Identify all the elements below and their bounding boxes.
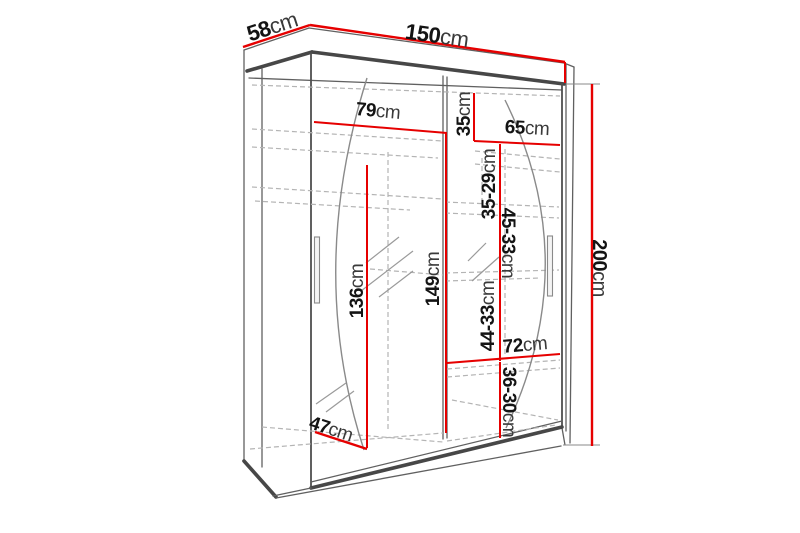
dim-label-upper-left-width-value: 79 — [355, 99, 377, 122]
dim-label-left-height-value: 136 — [347, 288, 368, 318]
dim-label-bottom-gap-unit: cm — [499, 413, 520, 437]
dim-label-right-gap-middle-value: 45-33 — [498, 208, 519, 254]
left-door-handle — [315, 237, 320, 303]
dim-label-left-height-unit: cm — [347, 264, 368, 288]
mirror-hatch-right — [468, 243, 499, 281]
plinth-floor-edge — [276, 446, 561, 498]
dim-label-upper-right-width-value: 65 — [504, 116, 526, 138]
cornice-left — [247, 52, 312, 71]
dim-label-bottom-depth-unit: cm — [326, 418, 356, 445]
dim-label-right-gap-top-unit: cm — [479, 149, 500, 173]
dim-label-upper-shelf-height-value: 35 — [454, 115, 475, 136]
dim-label-upper-left-width-unit: cm — [375, 100, 401, 123]
dim-label-width: 150cm — [404, 18, 470, 52]
dim-line-upper-right-width — [474, 141, 560, 145]
left-side-bottom — [244, 461, 276, 497]
dim-label-right-gap-middle: 45-33cm — [498, 208, 519, 278]
dim-label-left-height: 136cm — [347, 264, 368, 319]
under-cornice-edge — [249, 78, 562, 90]
dim-label-upper-right-width: 65cm — [504, 116, 550, 139]
dim-label-bottom-gap: 36-30cm — [499, 367, 520, 437]
dim-label-height: 200cm — [588, 239, 610, 297]
dim-label-right-gap-top-value: 35-29 — [479, 173, 500, 219]
dimension-labels: 58cm 150cm 200cm 79cm 35cm 65cm 35-29cm … — [243, 6, 610, 446]
dim-label-width-value: 150 — [404, 18, 443, 48]
dim-line-upper-left-width — [314, 122, 447, 133]
dim-label-lower-right-width-value: 72 — [502, 335, 524, 358]
dim-label-upper-shelf-height-unit: cm — [454, 92, 475, 116]
dim-label-depth-unit: cm — [266, 6, 301, 39]
dim-label-height-unit: cm — [588, 271, 610, 297]
wardrobe-dimension-diagram: 58cm 150cm 200cm 79cm 35cm 65cm 35-29cm … — [0, 0, 800, 533]
dim-label-bottom-gap-value: 36-30 — [499, 367, 520, 413]
dim-label-right-gap-middle-unit: cm — [498, 254, 519, 278]
dim-label-lower-right-width: 72cm — [502, 333, 548, 358]
mirror-hatch-left — [361, 237, 413, 297]
dim-label-upper-shelf-height: 35cm — [454, 92, 475, 136]
dim-label-center-height-unit: cm — [423, 252, 444, 276]
dim-label-upper-left-width: 79cm — [355, 99, 401, 124]
diagram-canvas: 58cm 150cm 200cm 79cm 35cm 65cm 35-29cm … — [0, 0, 800, 533]
dim-label-right-gap-lower-value: 44-33 — [478, 305, 499, 351]
dim-label-right-gap-lower: 44-33cm — [478, 281, 499, 351]
right-outer-edge — [570, 67, 574, 443]
dim-label-bottom-depth: 47cm — [307, 412, 356, 446]
dim-label-width-unit: cm — [439, 23, 471, 52]
dim-label-right-gap-lower-unit: cm — [478, 281, 499, 305]
right-door-handle — [548, 236, 553, 296]
dim-label-upper-right-width-unit: cm — [524, 117, 549, 139]
dim-label-height-value: 200 — [588, 239, 610, 271]
cabinet-outline — [244, 28, 574, 498]
dim-label-center-height: 149cm — [423, 252, 444, 307]
dim-label-lower-right-width-unit: cm — [522, 333, 548, 356]
dim-label-center-height-value: 149 — [423, 276, 444, 306]
right-bottom-corner — [562, 428, 565, 445]
mirror-hatch-bottom-left — [316, 383, 354, 412]
dim-label-right-gap-top: 35-29cm — [479, 149, 500, 219]
dimension-lines — [243, 25, 600, 449]
